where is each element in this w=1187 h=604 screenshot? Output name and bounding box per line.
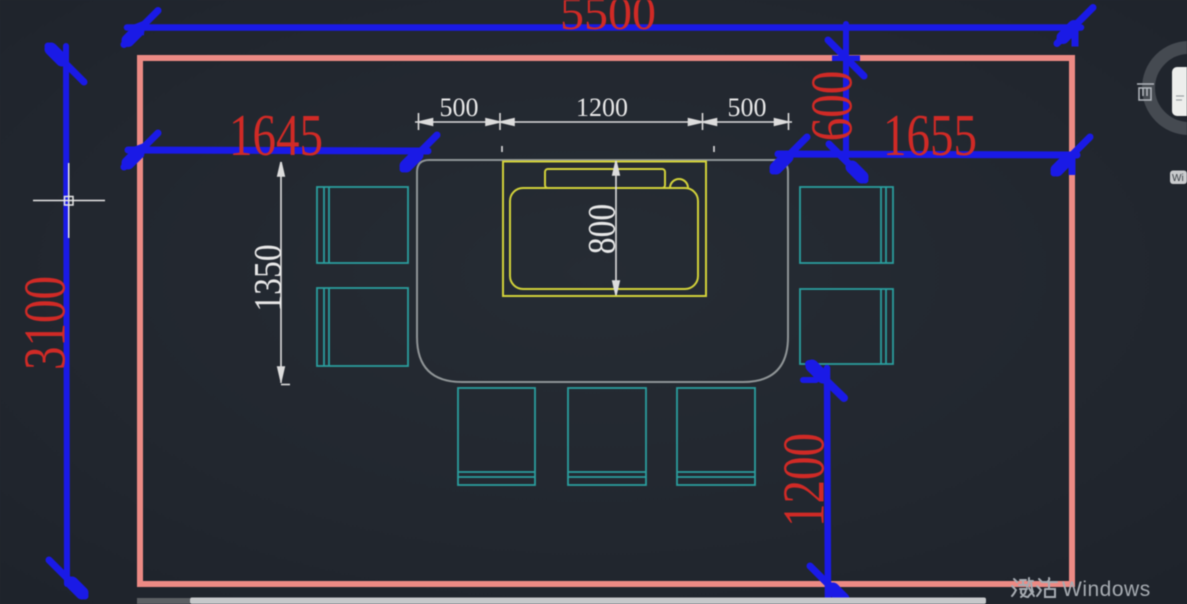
svg-text:500: 500 [440,93,479,122]
svg-text:3100: 3100 [11,276,77,370]
svg-text:1200: 1200 [576,93,628,122]
svg-text:Windows: Windows [1062,578,1151,601]
svg-text:1645: 1645 [229,102,323,168]
svg-text:800: 800 [580,204,623,254]
svg-text:1200: 1200 [770,433,836,527]
svg-text:1655: 1655 [883,102,977,168]
svg-text:600: 600 [798,71,864,141]
svg-text:500: 500 [728,93,767,122]
svg-text:Wi: Wi [1172,173,1184,184]
svg-text:1350: 1350 [246,244,289,311]
svg-text:5500: 5500 [560,0,656,40]
